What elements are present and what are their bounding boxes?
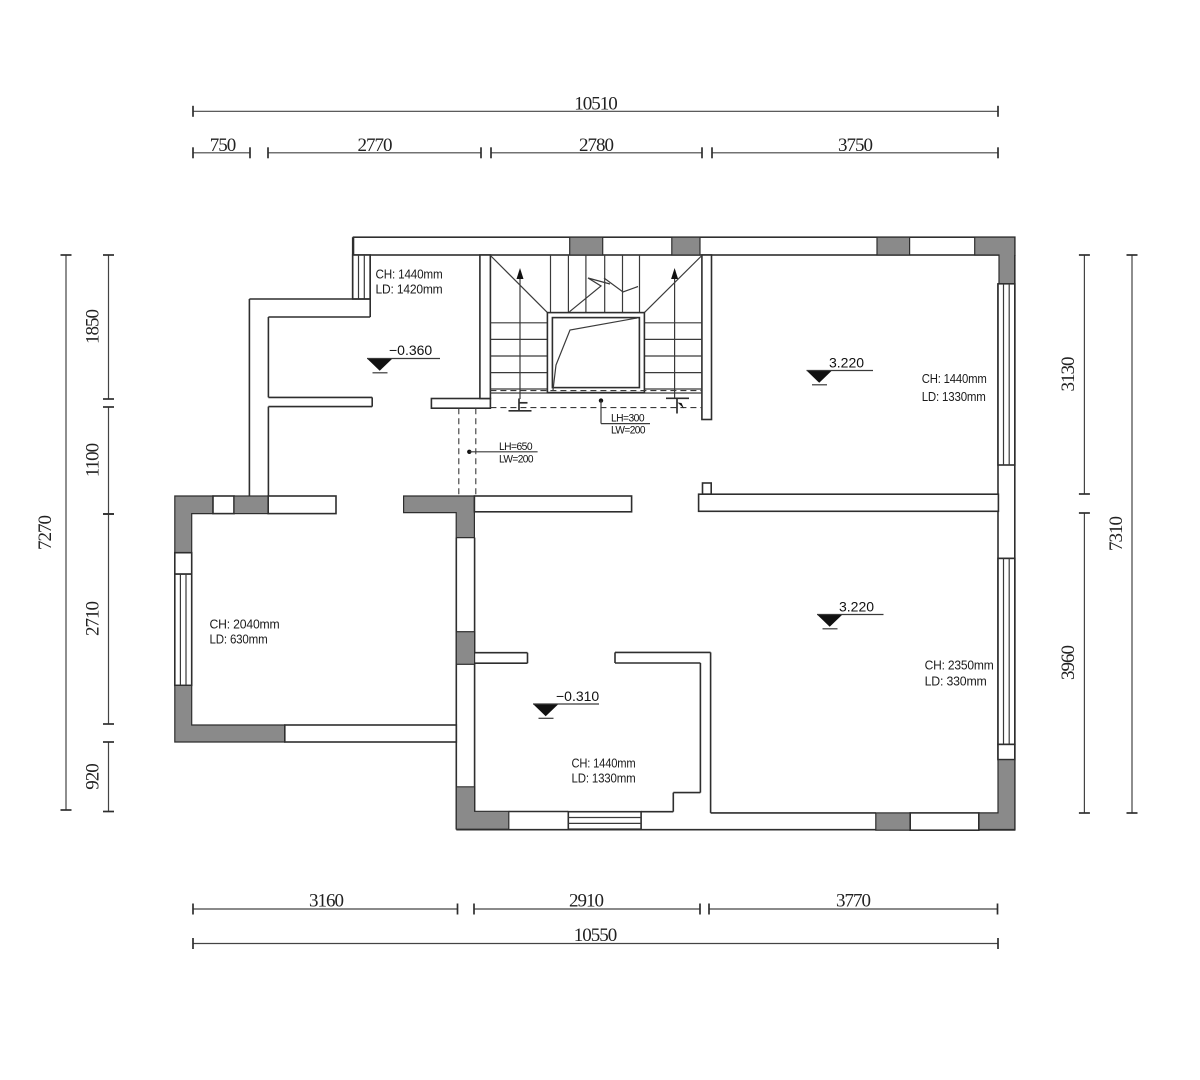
svg-text:−0.360: −0.360 (389, 342, 432, 358)
svg-text:1850: 1850 (83, 310, 104, 345)
svg-text:−0.310: −0.310 (556, 688, 599, 704)
svg-text:2770: 2770 (358, 135, 393, 156)
svg-text:920: 920 (83, 764, 104, 790)
svg-text:3960: 3960 (1058, 646, 1079, 681)
svg-text:LD: 1420mm: LD: 1420mm (376, 282, 443, 297)
svg-text:3130: 3130 (1058, 357, 1079, 392)
svg-text:CH: 1440mm: CH: 1440mm (572, 756, 636, 771)
svg-text:3750: 3750 (838, 135, 873, 156)
svg-text:LD: 1330mm: LD: 1330mm (922, 389, 986, 404)
svg-text:3770: 3770 (836, 890, 871, 911)
svg-text:3.220: 3.220 (839, 599, 874, 615)
svg-text:10550: 10550 (574, 925, 617, 946)
svg-text:1100: 1100 (83, 443, 104, 477)
svg-text:10510: 10510 (574, 94, 617, 115)
svg-text:LD: 630mm: LD: 630mm (210, 632, 268, 647)
svg-text:2780: 2780 (579, 135, 614, 156)
svg-text:CH: 1440mm: CH: 1440mm (922, 371, 987, 386)
svg-text:CH: 2350mm: CH: 2350mm (925, 658, 994, 673)
svg-text:LH=650: LH=650 (499, 441, 532, 453)
svg-text:2910: 2910 (569, 890, 604, 911)
svg-text:2710: 2710 (83, 602, 104, 637)
svg-text:LD: 1330mm: LD: 1330mm (572, 771, 636, 786)
svg-text:CH: 2040mm: CH: 2040mm (210, 617, 280, 632)
svg-text:7310: 7310 (1106, 517, 1127, 552)
svg-text:LW=200: LW=200 (611, 425, 645, 437)
svg-text:LD: 330mm: LD: 330mm (925, 674, 987, 689)
svg-text:750: 750 (210, 135, 236, 156)
svg-text:3.220: 3.220 (829, 355, 864, 371)
svg-text:7270: 7270 (35, 516, 56, 551)
svg-text:CH: 1440mm: CH: 1440mm (376, 267, 443, 282)
svg-text:LW=200: LW=200 (499, 453, 533, 465)
svg-text:LH=300: LH=300 (611, 413, 644, 425)
svg-text:3160: 3160 (309, 890, 344, 911)
